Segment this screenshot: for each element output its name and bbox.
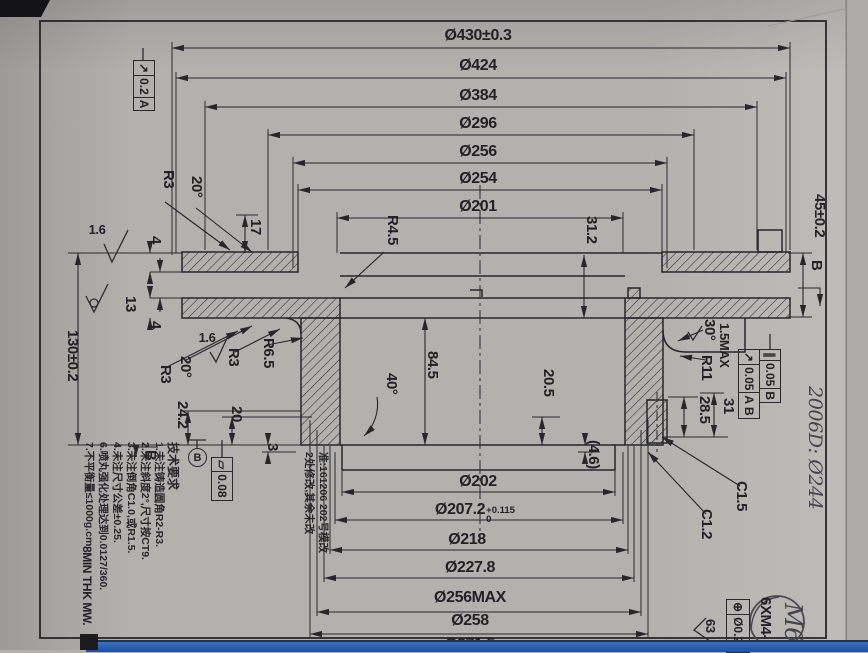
- dim-gap: (4.6): [586, 440, 601, 469]
- parallelism-datum: B: [760, 388, 780, 402]
- callout-thread: 6XM4-: [758, 597, 773, 639]
- paper-edge: [846, 0, 868, 650]
- callout-r3-b: R3: [226, 348, 241, 366]
- dim-plate-top: 4: [148, 236, 163, 244]
- gdt-frame-runout-right: ↗0.05A B: [738, 349, 760, 419]
- gdt-frame-parallelism: ∥0.05B: [759, 349, 781, 403]
- callout-c12: C1.2: [699, 509, 714, 539]
- callout-angle-low: 20°: [178, 356, 193, 377]
- revision-line-b: 2处修改,其余未改: [302, 452, 316, 607]
- callout-angle-mid: 40°: [384, 373, 399, 394]
- handwritten-stamp-m6: M6: [785, 603, 800, 642]
- callout-r65: R6.5: [261, 338, 276, 368]
- callout-r11: R11: [699, 355, 714, 381]
- runout-top-datum: A: [134, 97, 154, 111]
- dim-top-3: Ø296: [459, 116, 497, 132]
- note-line: 1.未注铸造圆角R2-R3.: [152, 442, 166, 647]
- datum-b-label: B: [194, 452, 202, 464]
- dim-bottom-5: Ø258: [451, 613, 489, 629]
- bore-dim-value: Ø207.2: [435, 501, 485, 518]
- dim-bottom-0: Ø202: [459, 474, 497, 490]
- technical-notes: 技术要求 1.未注铸造圆角R2-R3. 2.未注斜度2°,尺寸按CT9. 3.未…: [82, 442, 180, 647]
- dim-offset: 45±0.2: [812, 194, 827, 237]
- callout-r45: R4.5: [385, 215, 400, 245]
- dim-bottom-1: Ø207.2+0.1150: [435, 502, 515, 524]
- runout-icon: ↗: [134, 61, 154, 75]
- dim-hub-inner: 20: [229, 406, 244, 422]
- callout-angle-top: 20°: [189, 176, 204, 197]
- photo-corner-blob: [80, 634, 98, 650]
- roughness-check-icon: [104, 230, 128, 262]
- dim-rim: 17: [248, 219, 263, 235]
- dim-top-4: Ø256: [459, 144, 497, 160]
- parallelism-value: 0.05: [760, 360, 780, 388]
- callout-rough-a: 1.6: [89, 222, 106, 238]
- dim-hub-depth: 24.2: [175, 401, 190, 429]
- dim-slot: 13: [123, 296, 138, 312]
- section-b-right: B: [809, 260, 824, 270]
- photographed-engineering-drawing: { "dims": { "top": ["Ø430±0.3","Ø424","Ø…: [0, 0, 868, 650]
- callout-rough-b: 1.6: [199, 330, 216, 346]
- note-line: 6.喷丸强化处理达到0.0127/360.: [96, 442, 110, 647]
- flatness-value: 0.08: [212, 471, 232, 499]
- dim-ring-b: 31: [721, 398, 736, 414]
- photo-bottom-strip: [86, 640, 868, 652]
- dim-bottom-4: Ø256MAX: [434, 590, 506, 606]
- handwritten-margin-note: 2006D: Ø244: [807, 386, 822, 509]
- dim-clearance: 1.5MAX: [717, 323, 732, 368]
- dim-bottom-3: Ø227.8: [445, 560, 495, 576]
- note-line: 3.未注倒角C1.0,或R1.5.: [124, 442, 138, 647]
- callout-r3-top: R3: [161, 170, 176, 188]
- dim-top-2: Ø384: [459, 88, 497, 104]
- revision-note: 准:161206 202号模改 2处修改,其余未改: [302, 452, 330, 607]
- dim-step: 3: [265, 443, 280, 451]
- callout-c15: C1.5: [734, 481, 749, 511]
- parallelism-icon: ∥: [760, 350, 780, 360]
- notes-title: 技术要求: [166, 442, 180, 647]
- callout-rough-63: 63: [703, 619, 718, 633]
- revision-line-a: 准:161206 202号模改: [316, 452, 330, 607]
- note-line: 4.未注尺寸公差±0.25.: [110, 442, 124, 647]
- runout-top-value: 0.2: [134, 75, 154, 97]
- dim-bore-h: 84.5: [425, 351, 440, 379]
- dim-top-0: Ø430±0.3: [445, 28, 512, 44]
- gdt-frame-flatness: ▱0.08: [211, 457, 233, 501]
- flatness-icon: ▱: [212, 458, 232, 471]
- callout-r3-a: R3: [158, 365, 173, 383]
- dim-overall-height: 130±0.2: [65, 330, 80, 381]
- bore-tol-sub: 0: [486, 515, 515, 524]
- dim-top-1: Ø424: [459, 58, 497, 74]
- position-icon: ⊕: [727, 600, 749, 614]
- dim-bottom-2: Ø218: [448, 532, 486, 548]
- dim-ring-a: 28.5: [697, 396, 712, 424]
- gdt-frame-runout-top: ↗0.2A: [133, 60, 155, 111]
- datum-b-circle: B: [188, 448, 207, 467]
- small-dimension-arrows: [150, 241, 585, 461]
- dim-flange-h: 31.2: [584, 216, 599, 244]
- dim-top-6: Ø201: [459, 199, 497, 215]
- runout-icon: ↗: [739, 350, 759, 364]
- runout-right-datum: A B: [739, 392, 759, 417]
- dim-seat: 20.5: [541, 369, 556, 397]
- callout-angle-right: 30°: [702, 319, 717, 340]
- roughness-circle-check-icon: [86, 284, 108, 312]
- dim-plate-bottom: 4: [148, 321, 163, 329]
- note-line: 2.未注斜度2°,尺寸按CT9.: [138, 442, 152, 647]
- notes-footer: 8MIN THK MW.: [79, 546, 94, 625]
- dim-top-5: Ø254: [459, 171, 497, 187]
- runout-right-value: 0.05: [739, 364, 759, 392]
